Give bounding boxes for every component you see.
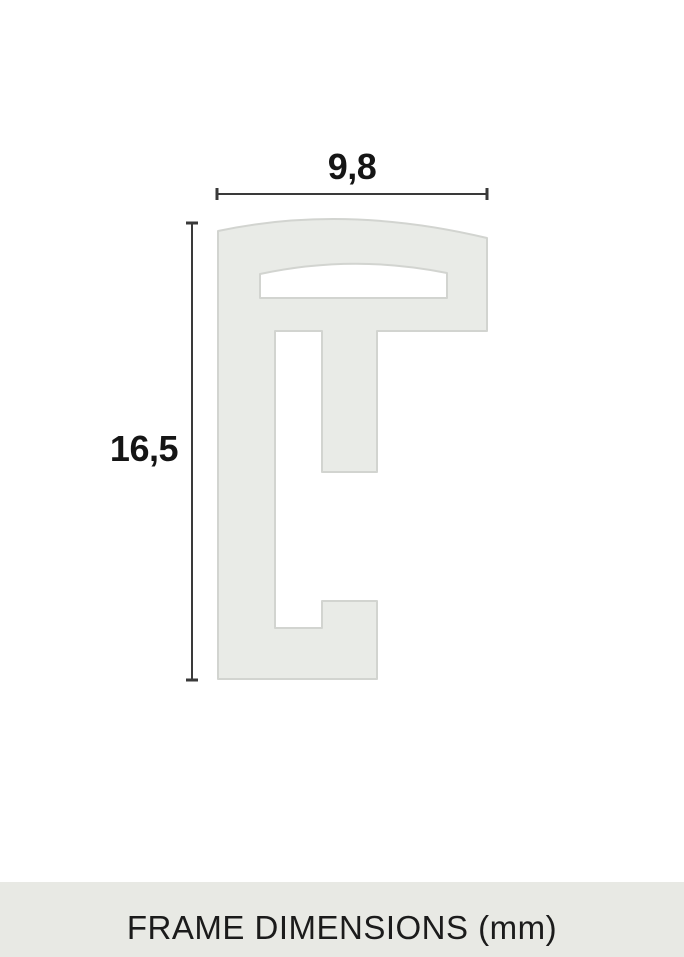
frame-profile-shape [218,219,487,679]
width-dimension-line [217,188,487,200]
height-dimension-label: 16,5 [58,431,178,467]
caption-bar: FRAME DIMENSIONS (mm) [0,882,684,957]
width-dimension-label: 9,8 [282,149,422,185]
caption-text: FRAME DIMENSIONS (mm) [127,911,557,944]
height-dimension-line [186,223,198,680]
frame-dimension-diagram: 9,8 16,5 FRAME DIMENSIONS (mm) [0,0,684,957]
